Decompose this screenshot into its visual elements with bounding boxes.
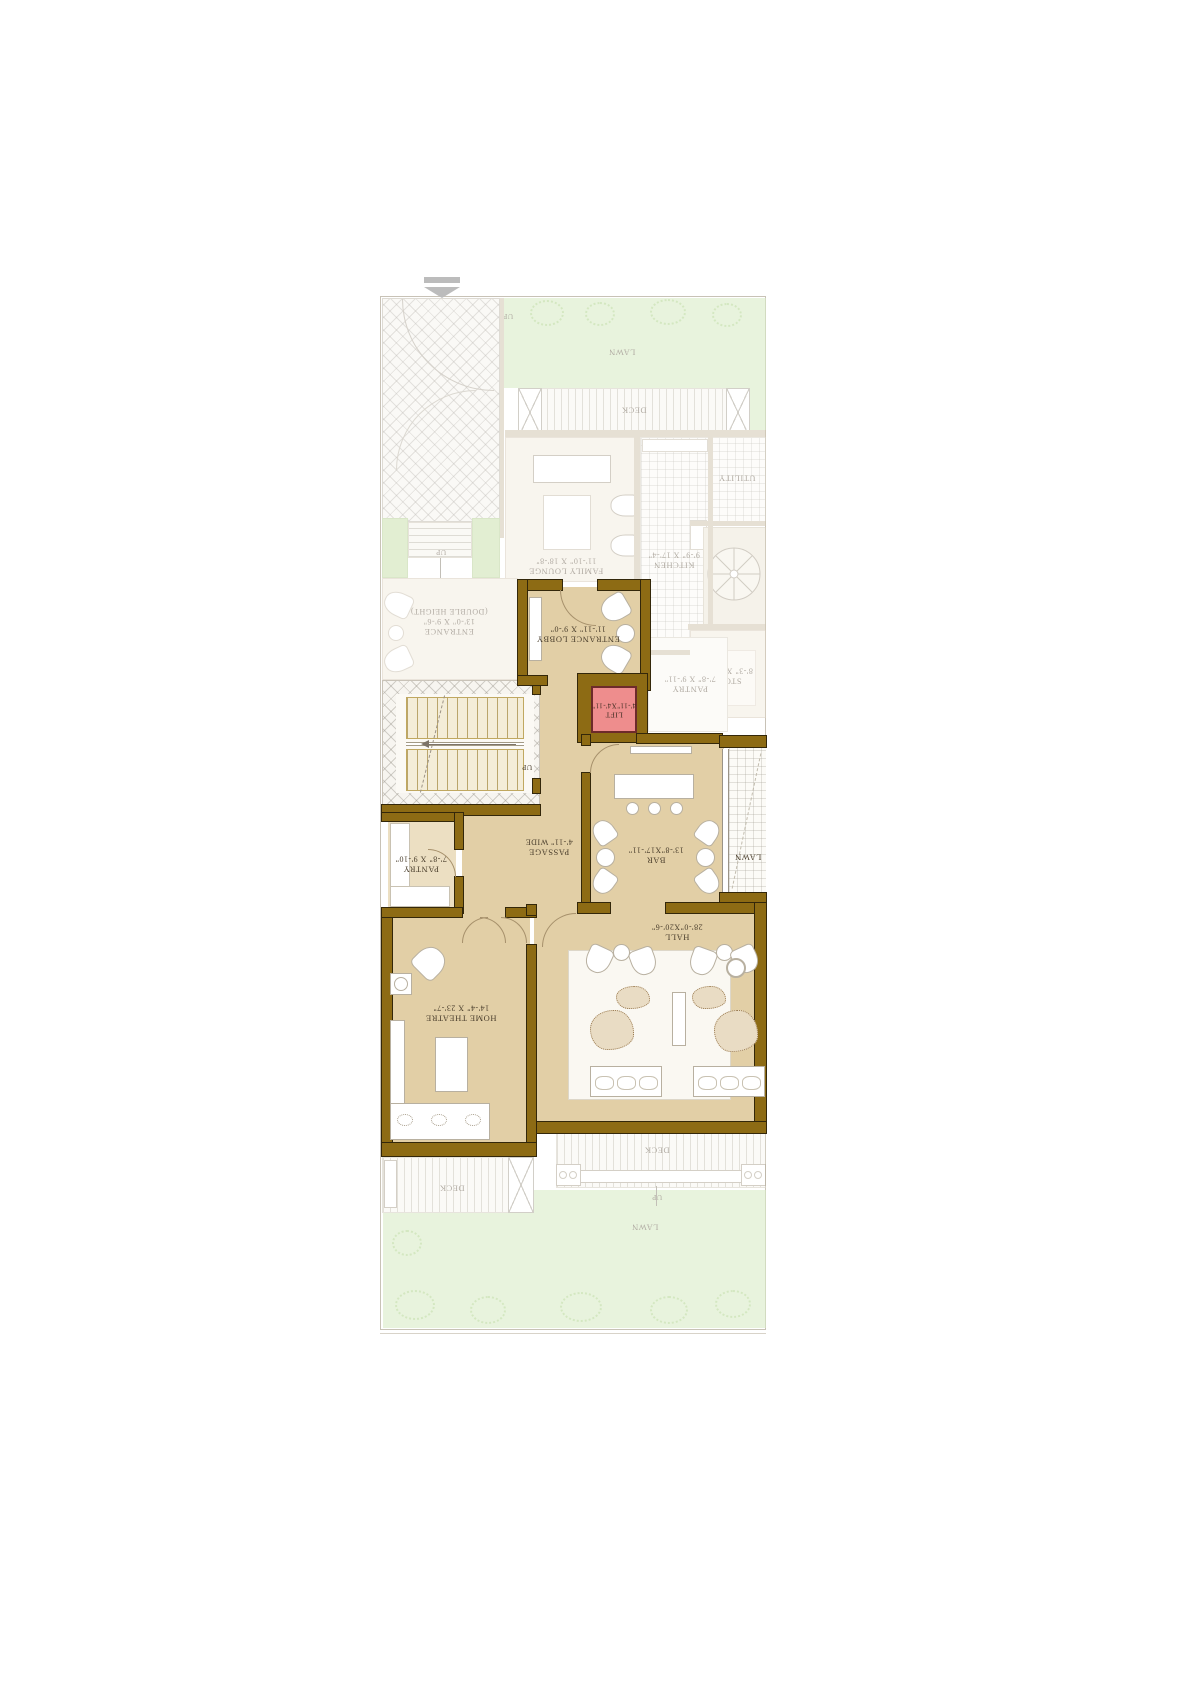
wall-bar-top bbox=[637, 734, 722, 743]
shrub bbox=[715, 1290, 751, 1318]
label-lawn-top: LAWN bbox=[609, 346, 636, 357]
wall-ht-top-a bbox=[382, 908, 462, 917]
stair-up-arrow bbox=[428, 744, 516, 745]
bar-back-shelf bbox=[630, 746, 692, 754]
sofa-cushion bbox=[465, 1114, 481, 1126]
shrub bbox=[530, 300, 564, 326]
ht-speaker bbox=[390, 973, 412, 995]
spiral-staircase bbox=[705, 545, 763, 603]
bar-table bbox=[696, 848, 715, 867]
hall-sofa bbox=[693, 1066, 765, 1097]
hall-plant bbox=[616, 986, 650, 1009]
wall-pantry-top bbox=[382, 813, 463, 821]
sofa-cushion bbox=[720, 1076, 739, 1090]
label-up-deck: UP bbox=[652, 1192, 663, 1202]
label-pantry: PANTRY 7'-8" X 9'-10" bbox=[395, 853, 447, 874]
label-up-lawn-step: UP bbox=[503, 311, 514, 321]
entrance-planter-right bbox=[472, 518, 500, 578]
label-up-entrance: UP bbox=[436, 547, 447, 557]
bar-table bbox=[596, 848, 615, 867]
label-lawn-mid: LAWN bbox=[735, 851, 762, 862]
hall-coffee-table bbox=[672, 992, 686, 1046]
hall-fireplace bbox=[726, 958, 746, 978]
hall-plant bbox=[692, 986, 726, 1009]
sofa-cushion bbox=[595, 1076, 614, 1090]
shrub bbox=[470, 1296, 506, 1324]
wall-bar-left-upper bbox=[582, 735, 590, 745]
shrub bbox=[650, 1296, 688, 1324]
bar-stool bbox=[670, 802, 683, 815]
shrub bbox=[712, 303, 742, 327]
bar-counter bbox=[614, 774, 694, 799]
shrub bbox=[392, 1230, 422, 1256]
wall-ht-divider-upper bbox=[527, 905, 536, 915]
label-lawn-bottom: LAWN bbox=[632, 1221, 659, 1232]
deck-bl-post-x bbox=[508, 1157, 534, 1213]
sofa-cushion bbox=[397, 1114, 413, 1126]
pantry-counter-bottom bbox=[390, 886, 450, 907]
wall-hall-top-b bbox=[666, 903, 766, 913]
stair-flight-upper bbox=[406, 697, 524, 739]
entry-arrow-triangle bbox=[424, 287, 460, 298]
label-deck-bottom-left: DECK bbox=[439, 1182, 464, 1193]
stair-up-arrowhead bbox=[421, 740, 429, 748]
entry-arrow-marker bbox=[424, 277, 460, 283]
ht-screen bbox=[435, 1037, 468, 1092]
ground-wall bbox=[500, 298, 504, 538]
family-lounge-table bbox=[543, 495, 591, 550]
entrance-table bbox=[388, 625, 404, 641]
plot-boundary-inner-line bbox=[380, 1333, 766, 1334]
deck-bench bbox=[580, 1170, 742, 1183]
label-entrance: ENTRANCE 13'-0" X 9'-6" (DOUBLE HEIGHT) bbox=[410, 605, 487, 637]
label-kitchen: KITCHEN 9'-9" X 17'-4" bbox=[648, 549, 700, 570]
ground-wall bbox=[708, 437, 713, 627]
sofa-cushion bbox=[698, 1076, 717, 1090]
wall-hall-right bbox=[755, 903, 766, 1133]
label-hall: HALL 28'-0"X20'-6" bbox=[651, 921, 702, 942]
entrance-planter-left bbox=[382, 518, 408, 578]
ht-chaise bbox=[390, 1020, 405, 1105]
family-lounge-sofa bbox=[533, 455, 611, 483]
hall-plant bbox=[714, 1010, 758, 1052]
wall-ht-divider bbox=[527, 945, 536, 1145]
bar-stool bbox=[648, 802, 661, 815]
label-utility: UTILITY bbox=[718, 472, 755, 483]
label-passage: PASSAGE 4'-11" WIDE bbox=[525, 836, 572, 857]
wall-lobby-left bbox=[518, 580, 527, 685]
label-pantry-ground: PANTRY 7'-8" X 9'-11" bbox=[664, 673, 715, 694]
deck-planter-pot bbox=[559, 1171, 567, 1179]
ground-wall bbox=[690, 521, 766, 526]
hall-side-table bbox=[613, 944, 630, 961]
bar-stool bbox=[626, 802, 639, 815]
label-deck-top: DECK bbox=[621, 404, 646, 415]
wall-lawn-mid-top bbox=[720, 736, 766, 747]
sofa-cushion bbox=[431, 1114, 447, 1126]
wall-lobby-bottom-stub bbox=[518, 676, 547, 685]
sofa-cushion bbox=[639, 1076, 658, 1090]
wall-stair-stub-bottom bbox=[533, 779, 540, 793]
sofa-cushion bbox=[617, 1076, 636, 1090]
label-family-lounge: FAMILY LOUNGE 11'-10" X 18'-8" bbox=[529, 555, 603, 576]
label-bar: BAR 13'-8"X17'-11" bbox=[628, 844, 683, 865]
shrub bbox=[395, 1290, 435, 1320]
deck-planter-pot bbox=[754, 1171, 762, 1179]
label-up-stairs: UP bbox=[522, 762, 533, 772]
ground-wall bbox=[505, 430, 766, 437]
bar-window bbox=[722, 749, 729, 893]
kitchen-counter bbox=[642, 439, 708, 452]
wall-bar-left-lower bbox=[582, 773, 590, 913]
wall-pantry-right-upper bbox=[455, 813, 463, 849]
label-home-theatre: HOME THEATRE 14'-4" X 23'-7" bbox=[426, 1002, 497, 1023]
shrub bbox=[650, 299, 686, 325]
ht-sofa bbox=[390, 1103, 490, 1140]
wall-hall-top-a bbox=[578, 903, 610, 913]
wall-ht-bottom bbox=[382, 1143, 536, 1156]
wall-hall-bottom bbox=[534, 1122, 766, 1133]
label-deck-bottom: DECK bbox=[644, 1144, 669, 1155]
label-lift: LIFT 4'-11"X4'-11" bbox=[592, 701, 636, 720]
entrance-steps-arrow bbox=[440, 558, 441, 580]
ground-wall bbox=[688, 624, 766, 630]
sofa-cushion bbox=[742, 1076, 761, 1090]
deck-planter-pot bbox=[569, 1171, 577, 1179]
speaker-cone bbox=[394, 977, 408, 991]
deck-planter-pot bbox=[744, 1171, 752, 1179]
label-entrance-lobby: ENTRANCE LOBBY 11'-11" X 9'-0" bbox=[536, 623, 619, 644]
shrub bbox=[585, 302, 615, 326]
shrub bbox=[560, 1292, 602, 1322]
passage-floor-lower bbox=[462, 815, 587, 915]
deck-bl-post bbox=[384, 1160, 397, 1208]
hall-plant bbox=[590, 1010, 634, 1050]
hall-sofa bbox=[590, 1066, 662, 1097]
stair-flight-lower bbox=[406, 749, 524, 791]
floor-plan-canvas: LAWN UP DECK FAMILY LOUNGE 11'-10" X 18'… bbox=[0, 0, 1200, 1697]
